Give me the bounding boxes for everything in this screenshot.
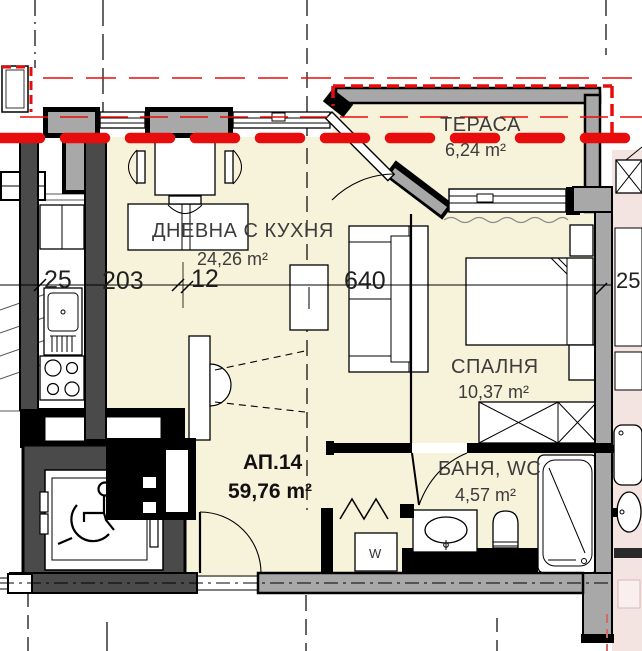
terrace-name: ТЕРАСА xyxy=(440,114,521,136)
bedroom-area: 10,37 m² xyxy=(458,382,529,402)
coffee-table xyxy=(290,265,328,330)
dim-left-wall: 25 xyxy=(44,266,72,294)
living-name: ДНЕВНА С КУХНЯ xyxy=(152,220,334,242)
bedroom-name: СПАЛНЯ xyxy=(451,356,539,378)
apartment-total-area: 59,76 m² xyxy=(228,480,312,503)
left-outer-wall xyxy=(20,140,38,410)
elevator-door xyxy=(40,492,48,512)
neighbor-balcony-top-left xyxy=(2,66,28,112)
dim-kitchen-span: 203 xyxy=(102,267,144,295)
window-kitchen xyxy=(100,112,145,128)
floor-plan-canvas: ТЕРАСА 6,24 m² ДНЕВНА С КУХНЯ 24,26 m² С… xyxy=(0,0,642,651)
bathroom-name: БАНЯ, WC xyxy=(438,458,541,480)
bath-wall-right xyxy=(467,443,612,453)
terrace-parapet-top xyxy=(336,88,600,103)
sofa xyxy=(349,226,428,372)
apartment-id: АП.14 xyxy=(243,451,302,474)
toilet xyxy=(493,511,518,548)
bathroom-area: 4,57 m² xyxy=(455,485,516,505)
bath-wall-left xyxy=(330,443,412,453)
bath-sink xyxy=(413,510,477,552)
floor-plan-drawing: ТЕРАСА 6,24 m² ДНЕВНА С КУХНЯ 24,26 m² С… xyxy=(0,0,642,651)
nightstand-bottom xyxy=(569,345,598,380)
dim-right-wall: 25 xyxy=(616,268,640,293)
neighbor-floor xyxy=(612,150,642,651)
stove xyxy=(40,356,84,400)
washer-label: W xyxy=(369,546,382,561)
terrace-area: 6,24 m² xyxy=(445,140,506,160)
kitchen-sink xyxy=(44,288,82,355)
kitchen-column xyxy=(40,205,84,400)
wardrobe xyxy=(479,402,597,443)
window-living xyxy=(233,112,330,128)
bathtub xyxy=(538,455,597,573)
dim-bedroom-span: 640 xyxy=(344,267,386,295)
right-wall xyxy=(595,212,612,573)
nightstand-top xyxy=(570,225,593,256)
neighbor-bathtub xyxy=(614,425,642,485)
dim-offset: 12 xyxy=(191,265,219,293)
